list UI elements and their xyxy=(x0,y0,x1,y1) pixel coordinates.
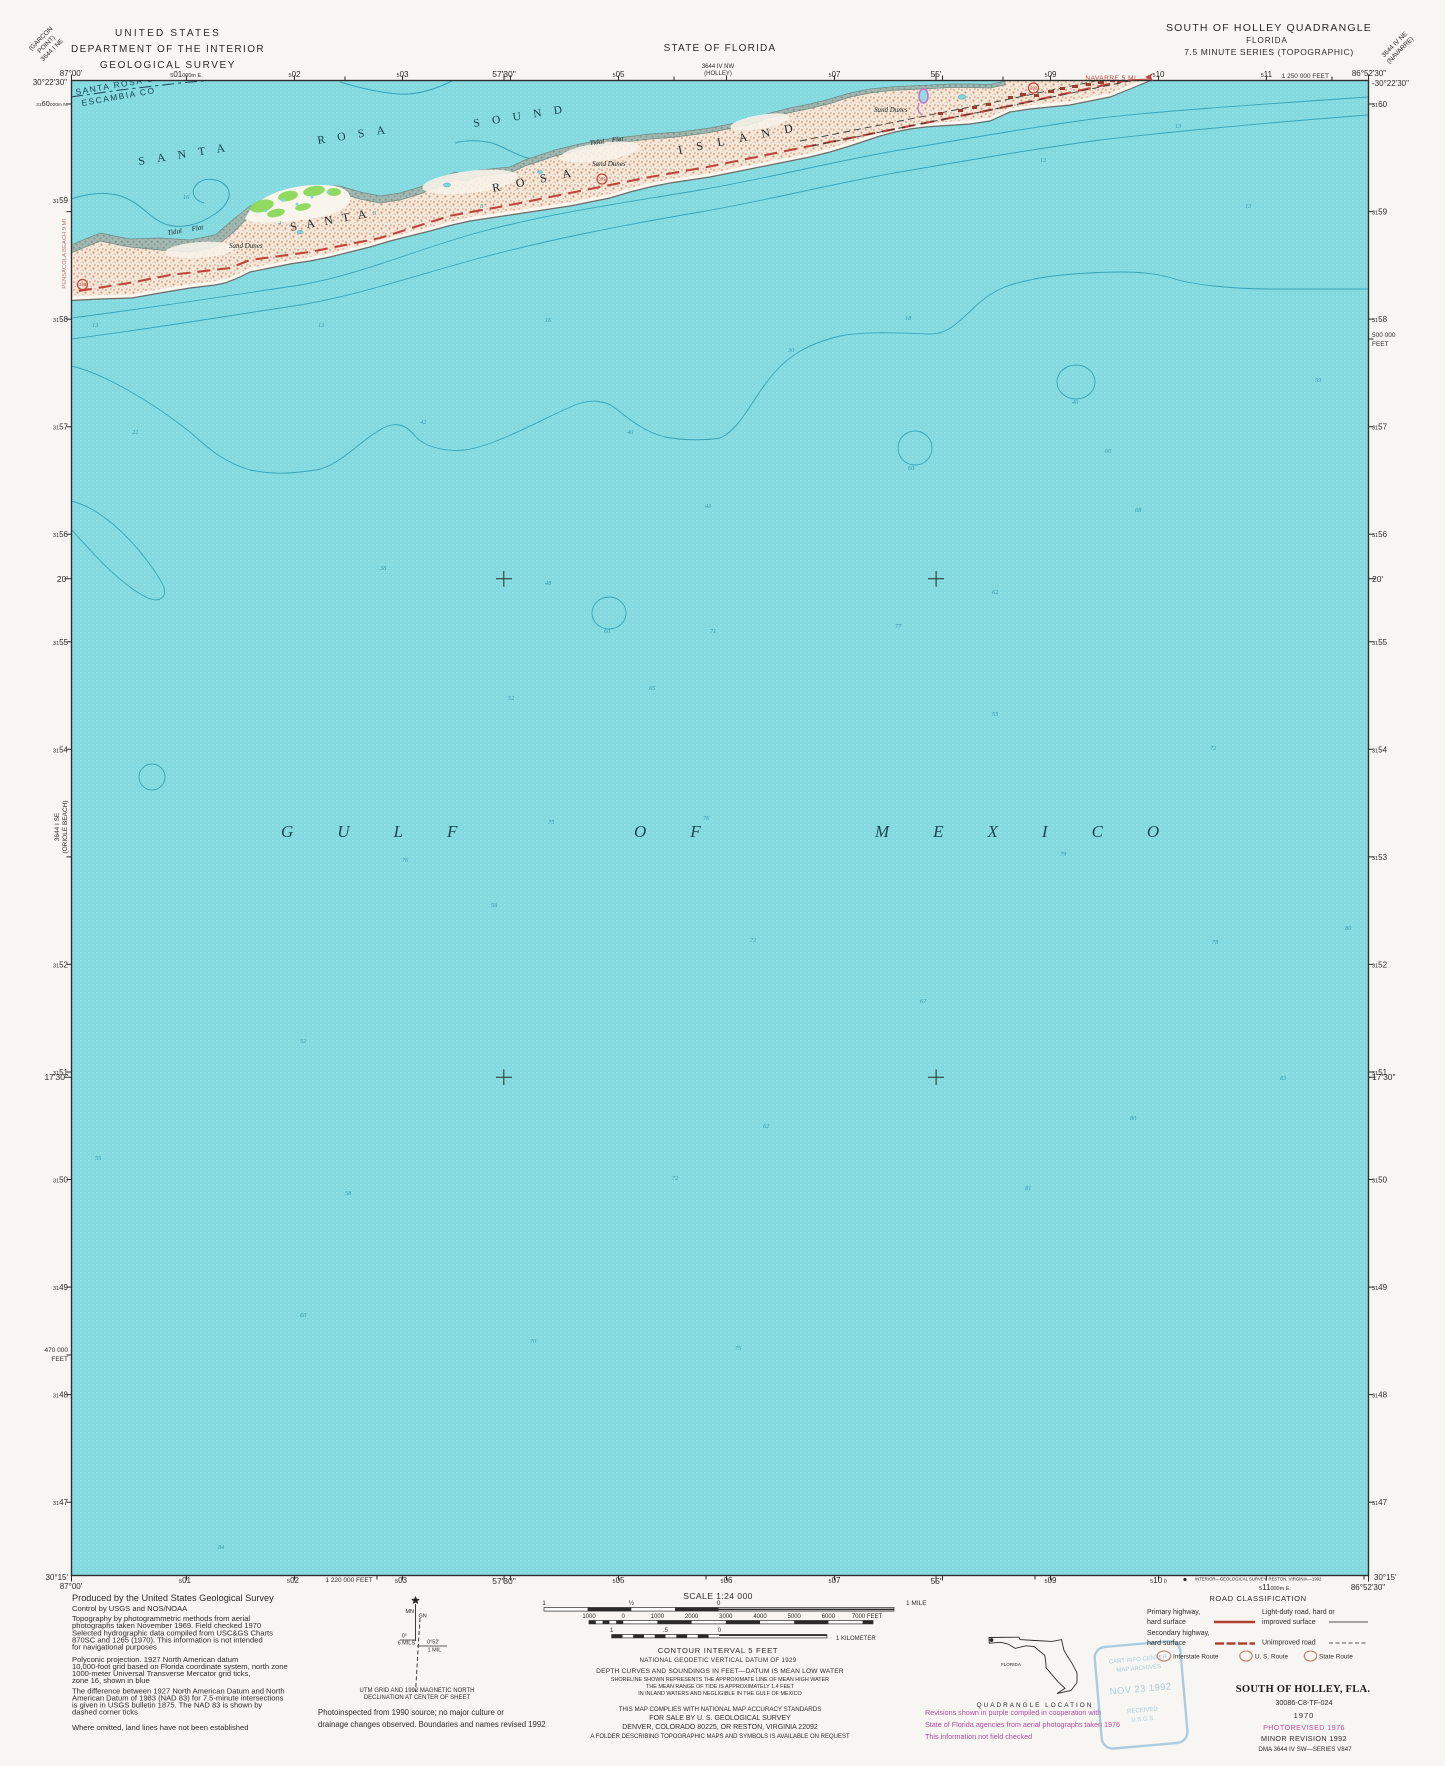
svg-text:1970: 1970 xyxy=(1294,1711,1315,1720)
svg-text:DEPARTMENT OF THE INTERIOR: DEPARTMENT OF THE INTERIOR xyxy=(71,44,265,55)
svg-text:DMA 3644 IV SW—SERIES V847: DMA 3644 IV SW—SERIES V847 xyxy=(1258,1746,1352,1753)
svg-text:500 000: 500 000 xyxy=(1372,332,1396,339)
svg-text:State Route: State Route xyxy=(1319,1654,1353,1661)
svg-text:1: 1 xyxy=(610,1628,614,1634)
svg-text:THE MEAN RANGE OF TIDE IS APPR: THE MEAN RANGE OF TIDE IS APPROXIMATELY … xyxy=(646,1684,795,1690)
svg-text:.5: .5 xyxy=(663,1628,669,1634)
svg-text:Light-duty road, hard or: Light-duty road, hard or xyxy=(1262,1609,1335,1616)
svg-text:0°: 0° xyxy=(402,1634,407,1640)
svg-text:zone 16, shown in blue: zone 16, shown in blue xyxy=(72,1676,150,1685)
svg-text:3147: 3147 xyxy=(53,1498,69,1507)
svg-text:20': 20' xyxy=(57,574,68,584)
svg-text:3156: 3156 xyxy=(53,530,69,539)
svg-text:3150: 3150 xyxy=(1372,1176,1388,1185)
svg-text:0: 0 xyxy=(718,1628,722,1634)
svg-text:Produced by the United States: Produced by the United States Geological… xyxy=(72,1593,274,1603)
svg-text:86°52'30": 86°52'30" xyxy=(1351,1583,1385,1592)
svg-text:FEET: FEET xyxy=(1372,341,1389,348)
svg-text:U.S.G.S.: U.S.G.S. xyxy=(1131,1716,1155,1724)
svg-text:-30°22'30": -30°22'30" xyxy=(1372,79,1409,88)
svg-text:30°15': 30°15' xyxy=(45,1573,68,1582)
svg-text:(HOLLEY): (HOLLEY) xyxy=(704,71,732,77)
svg-text:FLORIDA: FLORIDA xyxy=(1001,1662,1022,1667)
svg-text:MAP ARCHIVES: MAP ARCHIVES xyxy=(1116,1664,1161,1674)
svg-text:Unimproved road: Unimproved road xyxy=(1262,1640,1316,1647)
svg-text:dashed corner ticks: dashed corner ticks xyxy=(72,1708,138,1717)
svg-text:1 KILOMETER: 1 KILOMETER xyxy=(836,1636,876,1642)
svg-text:55': 55' xyxy=(930,1576,941,1586)
svg-text:SOUTH OF HOLLEY, FLA.: SOUTH OF HOLLEY, FLA. xyxy=(1236,1684,1371,1695)
svg-text:3148: 3148 xyxy=(53,1391,69,1400)
svg-text:MINOR REVISION 1992: MINOR REVISION 1992 xyxy=(1261,1734,1347,1743)
svg-text:NOV 23 1992: NOV 23 1992 xyxy=(1109,1681,1172,1697)
svg-text:3155: 3155 xyxy=(53,638,69,647)
svg-text:17'30": 17'30" xyxy=(44,1072,68,1082)
svg-text:Photoinspected from 1990 sourc: Photoinspected from 1990 source; no majo… xyxy=(318,1708,504,1717)
svg-text:3157: 3157 xyxy=(53,423,69,432)
svg-text:improved surface: improved surface xyxy=(1262,1619,1316,1626)
svg-text:506: 506 xyxy=(721,1576,734,1585)
svg-text:7000 FEET: 7000 FEET xyxy=(852,1614,883,1620)
svg-text:30°15': 30°15' xyxy=(1374,1573,1397,1582)
svg-text:DECLINATION AT CENTER OF SHEET: DECLINATION AT CENTER OF SHEET xyxy=(364,1695,471,1701)
svg-text:3149: 3149 xyxy=(1372,1283,1388,1292)
svg-text:1 MILE: 1 MILE xyxy=(906,1600,927,1607)
svg-text:FOR SALE BY U. S. GEOLOGICAL S: FOR SALE BY U. S. GEOLOGICAL SURVEY xyxy=(649,1715,791,1722)
svg-text:Interstate Route: Interstate Route xyxy=(1173,1654,1219,1661)
svg-text:FEET: FEET xyxy=(51,1356,68,1363)
svg-text:3644 IV NW: 3644 IV NW xyxy=(702,64,735,70)
svg-text:30086-C8-TF-024: 30086-C8-TF-024 xyxy=(1275,1698,1332,1707)
svg-text:3150: 3150 xyxy=(53,1176,69,1185)
svg-text:Control by USGS and NOS/NOAA: Control by USGS and NOS/NOAA xyxy=(72,1604,188,1613)
svg-text:3154: 3154 xyxy=(53,745,69,754)
svg-text:505: 505 xyxy=(613,1576,626,1585)
svg-text:Primary highway,: Primary highway, xyxy=(1147,1609,1200,1616)
svg-text:1 220 000 FEET: 1 220 000 FEET xyxy=(325,1577,372,1584)
svg-text:3156: 3156 xyxy=(1372,530,1388,539)
svg-text:3159: 3159 xyxy=(53,196,69,205)
svg-text:3000: 3000 xyxy=(719,1614,733,1620)
svg-text:ROAD CLASSIFICATION: ROAD CLASSIFICATION xyxy=(1209,1594,1306,1603)
svg-text:DEPTH CURVES AND SOUNDINGS IN: DEPTH CURVES AND SOUNDINGS IN FEET—DATUM… xyxy=(596,1668,844,1675)
svg-text:MN: MN xyxy=(405,1609,414,1615)
svg-text:2000: 2000 xyxy=(685,1614,699,1620)
svg-text:SHORELINE SHOWN REPRESENTS THE: SHORELINE SHOWN REPRESENTS THE APPROXIMA… xyxy=(611,1677,829,1683)
svg-text:INTERIOR—GEOLOGICAL SURVEY, RE: INTERIOR—GEOLOGICAL SURVEY, RESTON, VIRG… xyxy=(1195,1577,1322,1582)
svg-text:½: ½ xyxy=(629,1599,635,1607)
svg-text:1 250 000 FEET: 1 250 000 FEET xyxy=(1282,73,1329,80)
svg-text:STATE OF FLORIDA: STATE OF FLORIDA xyxy=(664,43,777,54)
svg-text:3158: 3158 xyxy=(53,315,69,324)
svg-text:FLORIDA: FLORIDA xyxy=(1246,36,1288,45)
svg-text:NAVARRE 5 MI.: NAVARRE 5 MI. xyxy=(1085,75,1138,82)
svg-text:Revisions shown in purple comp: Revisions shown in purple compiled in co… xyxy=(925,1708,1101,1717)
svg-text:3154: 3154 xyxy=(1372,745,1388,754)
svg-text:510 0: 510 0 xyxy=(1150,1576,1167,1585)
svg-text:This information not field che: This information not field checked xyxy=(925,1732,1032,1741)
svg-text:hard surface: hard surface xyxy=(1147,1619,1186,1626)
svg-text:GEOLOGICAL SURVEY: GEOLOGICAL SURVEY xyxy=(100,60,236,71)
svg-text:A FOLDER DESCRIBING TOPOGRAPHI: A FOLDER DESCRIBING TOPOGRAPHIC MAPS AND… xyxy=(590,1734,850,1740)
svg-text:30°22'30": 30°22'30" xyxy=(33,78,67,87)
svg-text:PHOTOREVISED 1976: PHOTOREVISED 1976 xyxy=(1263,1723,1345,1732)
svg-text:THIS MAP COMPLIES WITH NATIONA: THIS MAP COMPLIES WITH NATIONAL MAP ACCU… xyxy=(619,1706,822,1713)
svg-text:GN: GN xyxy=(419,1614,427,1620)
svg-text:3157: 3157 xyxy=(1372,423,1388,432)
svg-text:3155: 3155 xyxy=(1372,638,1388,647)
svg-text:3152: 3152 xyxy=(53,960,69,969)
svg-text:drainage changes observed. Bo: drainage changes observed. Boundaries an… xyxy=(318,1720,546,1729)
svg-text:501: 501 xyxy=(179,1576,192,1585)
svg-text:6 MILS: 6 MILS xyxy=(398,1641,416,1647)
svg-text:3159: 3159 xyxy=(1372,208,1388,217)
svg-text:IN INLAND WATERS AND NEGLIGIBL: IN INLAND WATERS AND NEGLIGIBLE IN THE G… xyxy=(638,1691,801,1697)
svg-text:3160: 3160 xyxy=(1372,100,1388,109)
svg-text:3148: 3148 xyxy=(1372,1391,1388,1400)
svg-text:DENVER, COLORADO 80225, OR RES: DENVER, COLORADO 80225, OR RESTON, VIRGI… xyxy=(622,1724,818,1731)
svg-text:511000m E.: 511000m E. xyxy=(1259,1583,1291,1592)
svg-text:Where omitted, land lines have: Where omitted, land lines have not been … xyxy=(72,1723,248,1732)
svg-text:0: 0 xyxy=(717,1600,721,1607)
svg-text:3160000m N.: 3160000m N. xyxy=(36,99,68,108)
svg-text:UTM GRID AND 1992 MAGNETIC NOR: UTM GRID AND 1992 MAGNETIC NORTH xyxy=(360,1688,475,1694)
svg-text:470 000: 470 000 xyxy=(45,1347,69,1354)
svg-text:17'30": 17'30" xyxy=(1372,1072,1396,1082)
svg-text:86°52'30": 86°52'30" xyxy=(1352,69,1386,78)
svg-text:3153: 3153 xyxy=(1372,853,1388,862)
svg-text:0°52': 0°52' xyxy=(427,1640,439,1646)
svg-text:1000: 1000 xyxy=(651,1614,665,1620)
svg-text:1000: 1000 xyxy=(582,1614,596,1620)
svg-text:20': 20' xyxy=(1372,574,1383,584)
svg-text:UNITED STATES: UNITED STATES xyxy=(115,28,221,39)
svg-text:7.5 MINUTE SERIES (TOPOGRAPHIC: 7.5 MINUTE SERIES (TOPOGRAPHIC) xyxy=(1184,47,1354,57)
svg-text:for navigational purposes: for navigational purposes xyxy=(72,1643,157,1652)
svg-text:57'30": 57'30" xyxy=(492,1576,516,1586)
svg-text:PENSACOLA BEACH 9 MI.: PENSACOLA BEACH 9 MI. xyxy=(62,217,68,289)
svg-text:507: 507 xyxy=(829,1576,842,1585)
svg-text:5000: 5000 xyxy=(788,1614,802,1620)
svg-text:NATIONAL GEODETIC VERTICAL DAT: NATIONAL GEODETIC VERTICAL DATUM OF 1929 xyxy=(640,1657,797,1664)
svg-text:(ORIOLE BEACH): (ORIOLE BEACH) xyxy=(62,800,69,853)
svg-text:U. S. Route: U. S. Route xyxy=(1255,1654,1288,1661)
svg-text:hard surface: hard surface xyxy=(1147,1640,1186,1647)
svg-text:6000: 6000 xyxy=(822,1614,836,1620)
svg-text:502: 502 xyxy=(287,1576,300,1585)
svg-text:RECEIVED: RECEIVED xyxy=(1127,1706,1159,1715)
svg-text:CONTOUR INTERVAL 5 FEET: CONTOUR INTERVAL 5 FEET xyxy=(658,1646,778,1655)
svg-text:3644 I SE: 3644 I SE xyxy=(54,812,61,841)
svg-text:1 MIL: 1 MIL xyxy=(428,1648,442,1654)
svg-text:87°00': 87°00' xyxy=(60,1582,83,1591)
svg-text:0: 0 xyxy=(622,1614,626,1620)
svg-text:3149: 3149 xyxy=(53,1283,69,1292)
svg-text:3152: 3152 xyxy=(1372,960,1388,969)
svg-text:509: 509 xyxy=(1045,1576,1058,1585)
svg-text:503: 503 xyxy=(395,1576,408,1585)
svg-text:3147: 3147 xyxy=(1372,1498,1388,1507)
svg-text:3158: 3158 xyxy=(1372,315,1388,324)
svg-text:4000: 4000 xyxy=(753,1614,767,1620)
svg-text:Secondary highway,: Secondary highway, xyxy=(1147,1630,1210,1637)
svg-text:SOUTH OF HOLLEY QUADRANGLE: SOUTH OF HOLLEY QUADRANGLE xyxy=(1166,22,1372,34)
svg-text:1: 1 xyxy=(542,1600,546,1607)
svg-text:State of Florida agencies from: State of Florida agencies from aerial ph… xyxy=(925,1720,1120,1729)
